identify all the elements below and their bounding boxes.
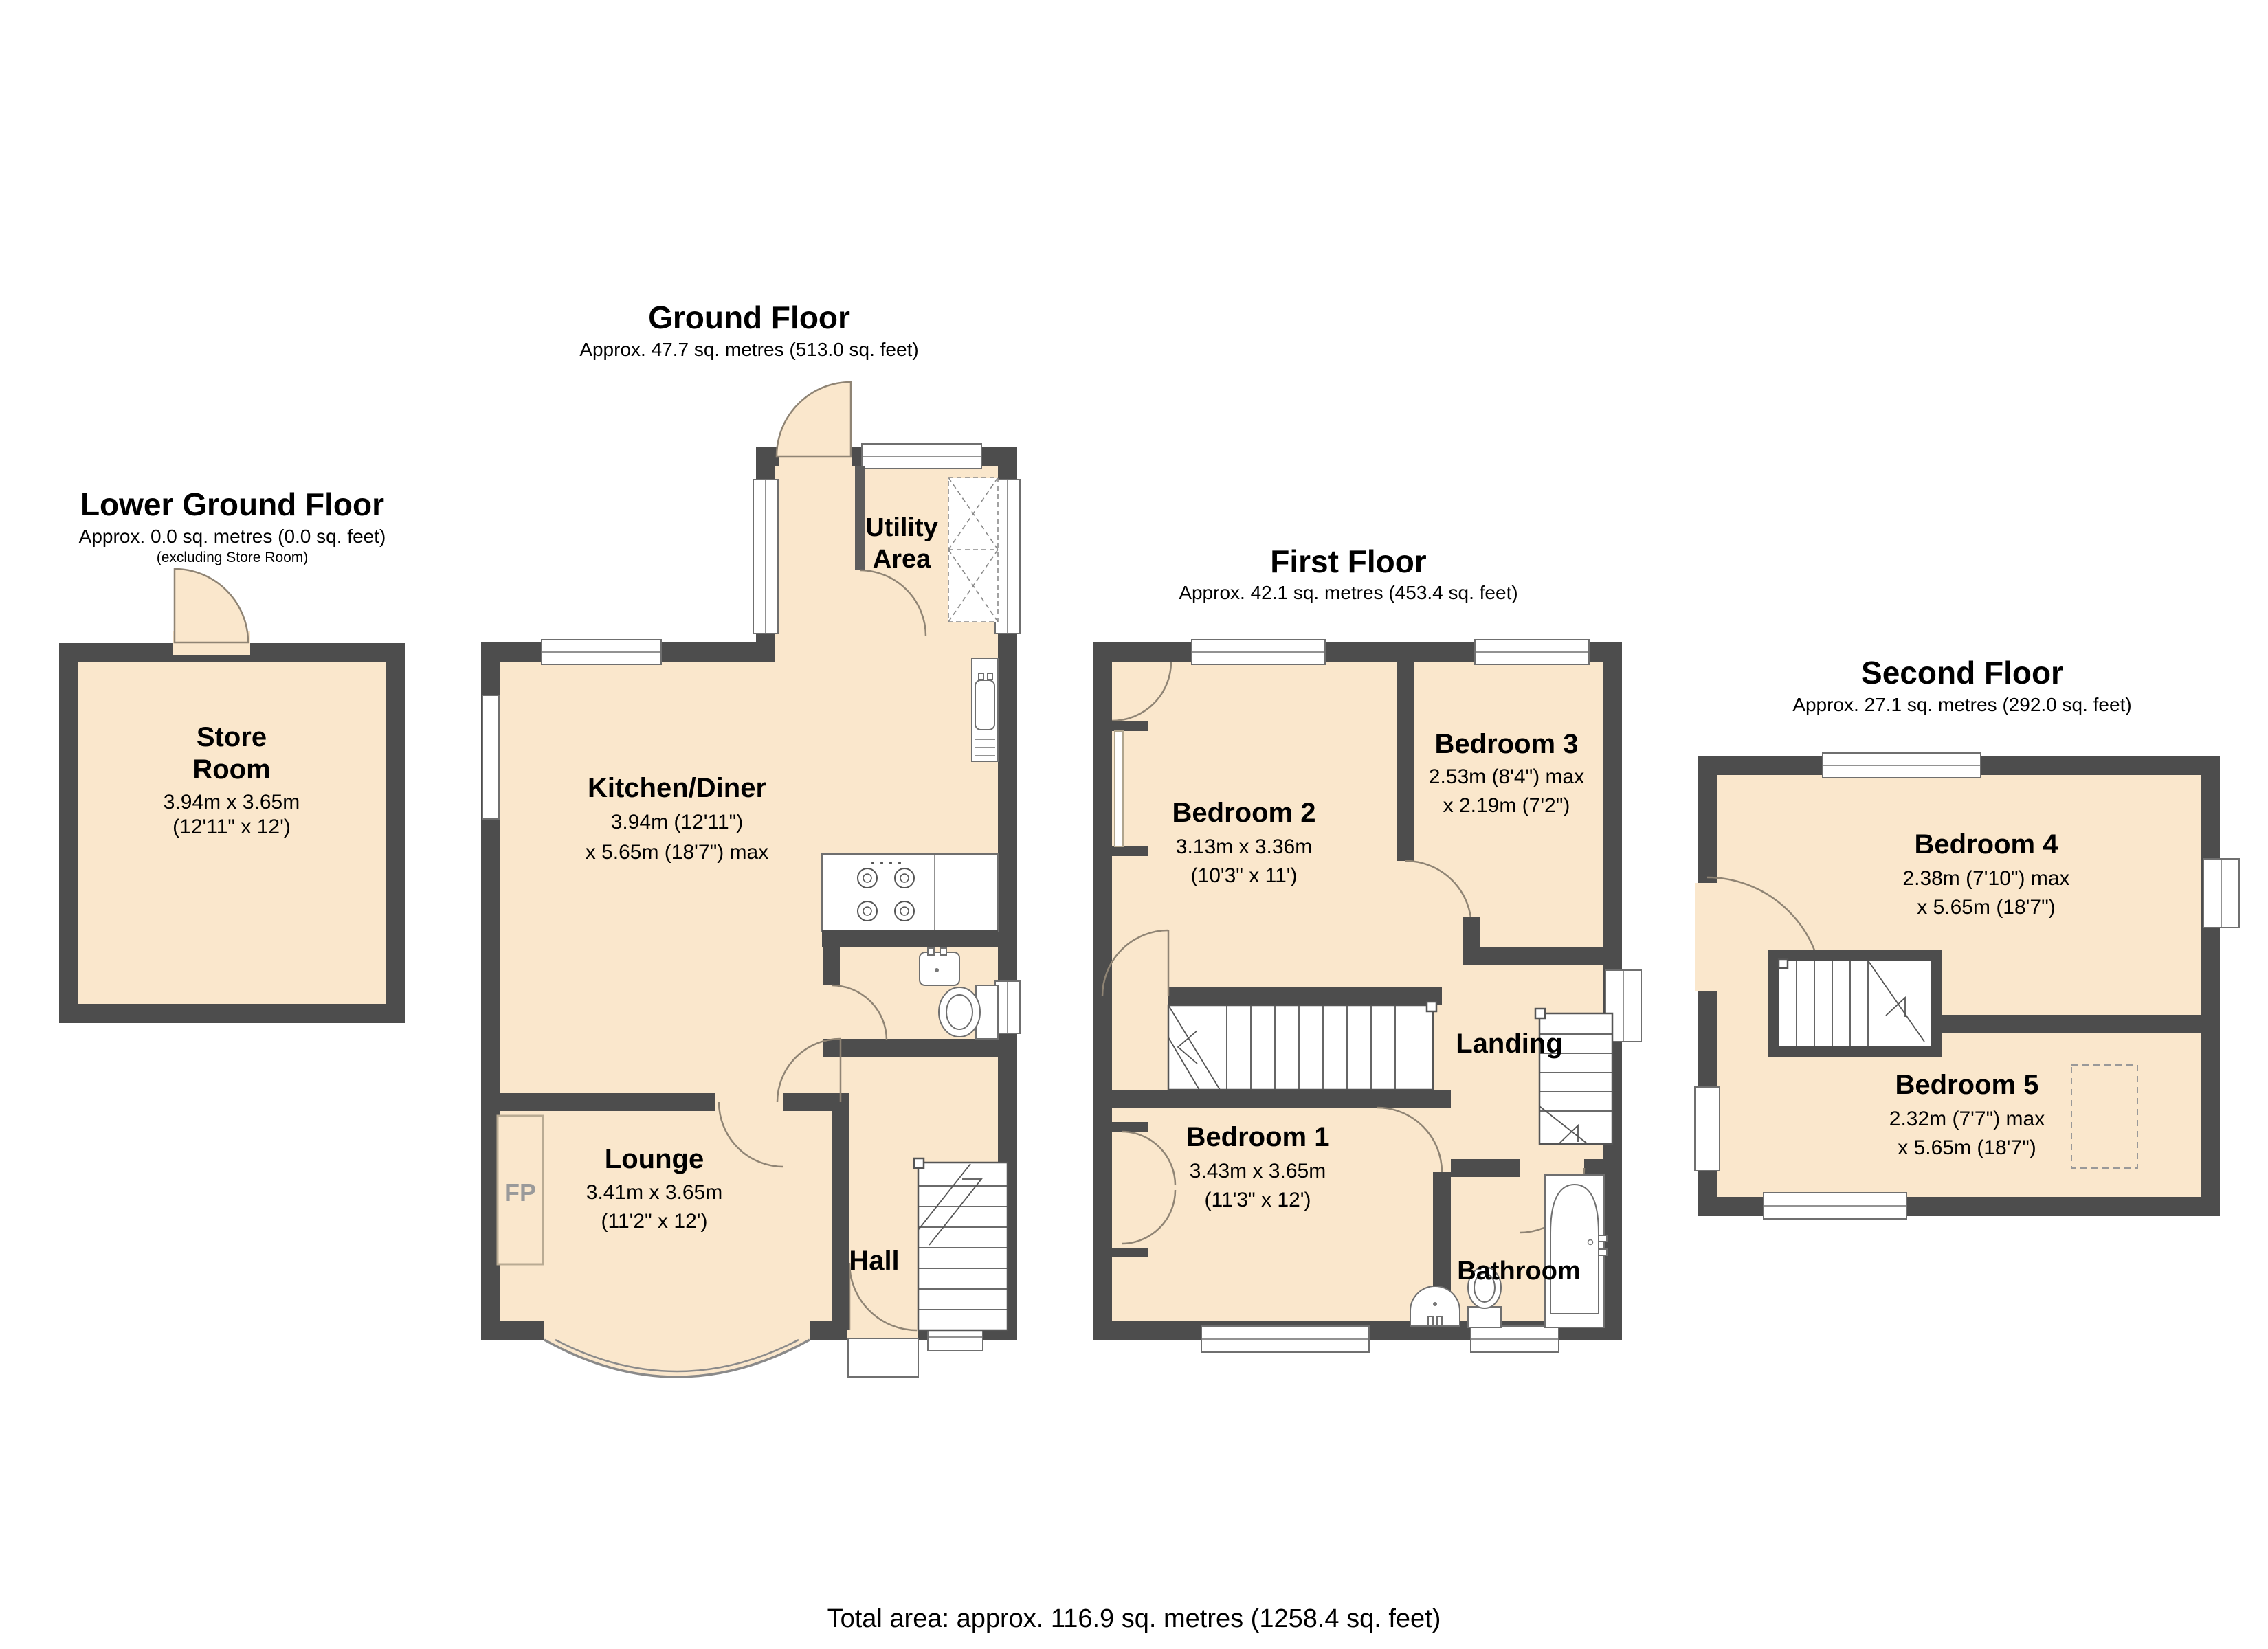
bedroom3-name: Bedroom 3 bbox=[1435, 729, 1579, 759]
bay-area bbox=[544, 1322, 810, 1377]
lounge-name: Lounge bbox=[605, 1144, 704, 1174]
lower-ground-floor-area: Approx. 0.0 sq. metres (0.0 sq. feet) bbox=[79, 526, 386, 547]
kitchen-lounge-wall bbox=[481, 1093, 715, 1111]
store-room-name-line2: Room bbox=[192, 754, 270, 785]
second-floor-area: Approx. 27.1 sq. metres (292.0 sq. feet) bbox=[1792, 694, 2131, 715]
bathroom-name: Bathroom bbox=[1457, 1257, 1580, 1286]
bedroom5-name: Bedroom 5 bbox=[1895, 1070, 2039, 1100]
kitchen-counter-hob-icon bbox=[822, 854, 998, 931]
bedroom4-dims-ft: x 5.65m (18'7") bbox=[1917, 896, 2055, 919]
b4-b5-divider-wall bbox=[1937, 1015, 2210, 1033]
kitchen-recess bbox=[482, 695, 499, 819]
utility-wall-stub bbox=[855, 466, 865, 570]
second-left-door-panel bbox=[1695, 1087, 1720, 1171]
bedroom2-dims-ft: (10'3" x 11') bbox=[1191, 864, 1298, 887]
bedroom3-dims-ft: x 2.19m (7'2") bbox=[1443, 794, 1570, 817]
b2-b3-divider-wall bbox=[1397, 646, 1414, 861]
wc-basin-icon bbox=[920, 948, 959, 985]
wc-toilet-icon bbox=[939, 985, 998, 1039]
bedroom5-dims-m: 2.32m (7'7") max bbox=[1889, 1108, 2045, 1130]
first-floor-title: First Floor bbox=[1270, 543, 1427, 579]
ground-stairs-icon bbox=[914, 1158, 1008, 1330]
landing-name: Landing bbox=[1456, 1029, 1563, 1059]
floor-ground: Ground Floor Approx. 47.7 sq. metres (51… bbox=[481, 300, 1020, 1377]
wc-bottom-wall bbox=[823, 1039, 998, 1057]
bathroom-top-wall-left bbox=[1451, 1159, 1520, 1177]
lounge-hall-wall bbox=[832, 1093, 849, 1330]
lounge-dims-ft: (11'2" x 12') bbox=[601, 1210, 708, 1233]
bedroom3-dims-m: 2.53m (8'4") max bbox=[1429, 765, 1584, 788]
store-room-door-icon bbox=[175, 569, 248, 642]
b1-top-wall bbox=[1102, 1090, 1442, 1108]
bedroom1-name: Bedroom 1 bbox=[1186, 1122, 1330, 1152]
utility-shelving-hatch bbox=[948, 478, 998, 622]
bedroom1-dims-m: 3.43m x 3.65m bbox=[1190, 1160, 1326, 1182]
lower-ground-floor-title: Lower Ground Floor bbox=[80, 486, 384, 522]
kitchen-dims-ft: x 5.65m (18'7") max bbox=[586, 841, 768, 864]
floor-first: First Floor Approx. 42.1 sq. metres (453… bbox=[1102, 543, 1641, 1352]
b1-landing-stub bbox=[1433, 1090, 1451, 1108]
hall-name: Hall bbox=[849, 1246, 899, 1276]
wc-top-wall bbox=[822, 930, 998, 947]
store-room-dims-m: 3.94m x 3.65m bbox=[164, 791, 300, 814]
floorplan-canvas: Lower Ground Floor Approx. 0.0 sq. metre… bbox=[0, 0, 2268, 1649]
kitchen-dims-m: 3.94m (12'11") bbox=[611, 811, 744, 833]
bath-icon bbox=[1545, 1175, 1607, 1327]
first-stairs-down-icon bbox=[1168, 1002, 1436, 1090]
bedroom2-name: Bedroom 2 bbox=[1172, 798, 1316, 828]
bedroom5-dims-ft: x 5.65m (18'7") bbox=[1898, 1136, 2036, 1159]
first-floor-area: Approx. 42.1 sq. metres (453.4 sq. feet) bbox=[1179, 582, 1517, 603]
fireplace-label: FP bbox=[504, 1178, 536, 1207]
bedroom2-dims-m: 3.13m x 3.36m bbox=[1176, 835, 1312, 858]
bedroom4-dims-m: 2.38m (7'10") max bbox=[1902, 867, 2069, 890]
ground-floor-title: Ground Floor bbox=[648, 300, 850, 335]
floor-second: Second Floor Approx. 27.1 sq. metres (29… bbox=[1695, 655, 2239, 1219]
lounge-dims-m: 3.41m x 3.65m bbox=[586, 1181, 722, 1204]
second-stairs-icon bbox=[1773, 955, 1937, 1051]
utility-name-line1: Utility bbox=[865, 513, 938, 542]
kitchen-name: Kitchen/Diner bbox=[588, 773, 766, 803]
b3-bottom-wall bbox=[1463, 947, 1622, 965]
second-door-opening bbox=[1695, 883, 1720, 991]
utility-sink-icon bbox=[972, 658, 998, 761]
front-door-slab-icon bbox=[848, 1338, 918, 1377]
wc-left-wall bbox=[823, 947, 840, 985]
b2-bottom-wall bbox=[1168, 987, 1442, 1005]
lower-ground-floor-note: (excluding Store Room) bbox=[157, 550, 309, 565]
bedroom4-name: Bedroom 4 bbox=[1915, 829, 2059, 860]
store-room-name-line1: Store bbox=[197, 722, 267, 752]
total-area-text: Total area: approx. 116.9 sq. metres (12… bbox=[827, 1604, 1441, 1633]
ground-floor-area: Approx. 47.7 sq. metres (513.0 sq. feet) bbox=[579, 339, 918, 360]
store-room-dims-ft: (12'11" x 12') bbox=[173, 816, 291, 838]
floor-lower-ground: Lower Ground Floor Approx. 0.0 sq. metre… bbox=[69, 486, 395, 1013]
bedroom1-dims-ft: (11'3" x 12') bbox=[1205, 1189, 1311, 1211]
back-door-icon bbox=[777, 382, 851, 456]
utility-name-line2: Area bbox=[873, 545, 931, 574]
second-floor-title: Second Floor bbox=[1861, 655, 2063, 691]
